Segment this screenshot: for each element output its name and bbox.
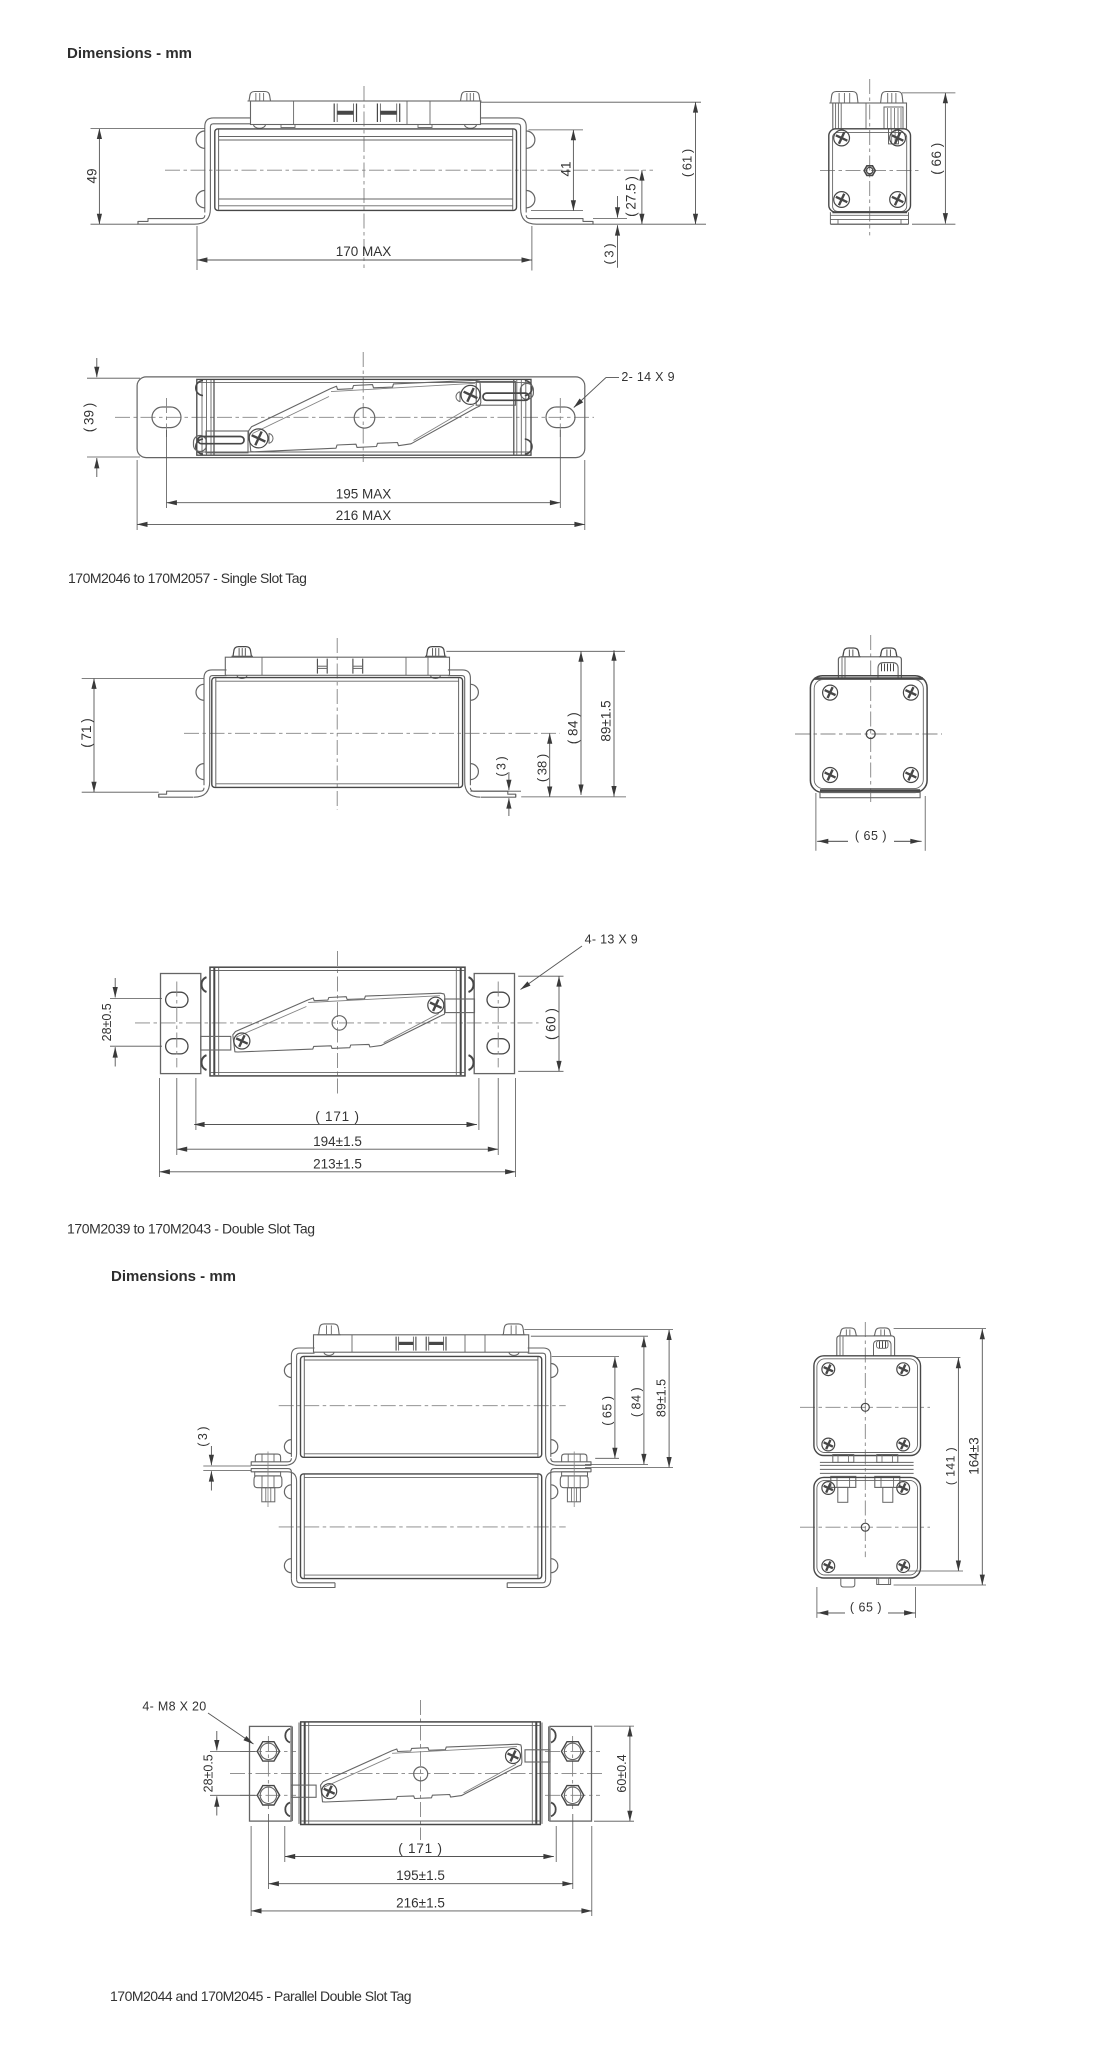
svg-text:164±3: 164±3 [967, 1437, 982, 1474]
svg-text:89±1.5: 89±1.5 [599, 700, 614, 741]
svg-text:( 38 ): ( 38 ) [534, 754, 549, 782]
svg-text:4- 13 X 9: 4- 13 X 9 [585, 933, 638, 947]
svg-text:( 3 ): ( 3 ) [196, 1426, 210, 1446]
svg-text:170M2046 to 170M2057 - Single: 170M2046 to 170M2057 - Single Slot Tag [68, 570, 306, 586]
svg-text:216 MAX: 216 MAX [336, 508, 392, 523]
svg-text:89±1.5: 89±1.5 [655, 1379, 669, 1417]
svg-text:( 171 ): ( 171 ) [315, 1109, 360, 1124]
svg-text:170M2039 to 170M2043 - Double: 170M2039 to 170M2043 - Double Slot Tag [67, 1221, 315, 1237]
svg-text:213±1.5: 213±1.5 [313, 1156, 362, 1171]
svg-text:( 3 ): ( 3 ) [494, 756, 508, 776]
svg-text:( 61 ): ( 61 ) [680, 149, 695, 177]
svg-text:Dimensions - mm: Dimensions - mm [67, 45, 192, 62]
svg-text:4- M8 X 20: 4- M8 X 20 [142, 1700, 206, 1714]
svg-text:( 27.5 ): ( 27.5 ) [624, 176, 639, 217]
svg-text:( 66 ): ( 66 ) [929, 142, 944, 174]
svg-text:28±0.5: 28±0.5 [202, 1754, 216, 1792]
svg-text:( 39 ): ( 39 ) [82, 403, 97, 432]
svg-text:( 171 ): ( 171 ) [398, 1841, 443, 1856]
svg-text:( 84 ): ( 84 ) [566, 712, 581, 744]
svg-text:170 MAX: 170 MAX [336, 244, 392, 259]
svg-text:170M2044 and 170M2045 - Parall: 170M2044 and 170M2045 - Parallel Double … [110, 1988, 411, 2004]
svg-text:195±1.5: 195±1.5 [396, 1868, 445, 1883]
svg-text:216±1.5: 216±1.5 [396, 1895, 445, 1910]
svg-text:49: 49 [85, 168, 100, 183]
svg-text:( 65 ): ( 65 ) [600, 1395, 614, 1425]
svg-text:60±0.4: 60±0.4 [615, 1754, 629, 1792]
svg-text:195 MAX: 195 MAX [336, 487, 392, 502]
svg-text:( 65 ): ( 65 ) [855, 829, 887, 843]
svg-text:( 141 ): ( 141 ) [943, 1447, 957, 1485]
svg-text:( 84 ): ( 84 ) [629, 1387, 643, 1417]
svg-text:41: 41 [558, 161, 573, 176]
svg-text:( 3 ): ( 3 ) [602, 243, 617, 264]
svg-text:( 65 ): ( 65 ) [850, 1601, 882, 1615]
svg-text:( 71 ): ( 71 ) [79, 718, 94, 747]
svg-text:28±0.5: 28±0.5 [100, 1003, 114, 1041]
svg-text:( 60 ): ( 60 ) [544, 1008, 559, 1040]
svg-text:194±1.5: 194±1.5 [313, 1134, 362, 1149]
svg-text:2- 14 X 9: 2- 14 X 9 [621, 370, 674, 384]
svg-text:Dimensions - mm: Dimensions - mm [111, 1268, 236, 1285]
